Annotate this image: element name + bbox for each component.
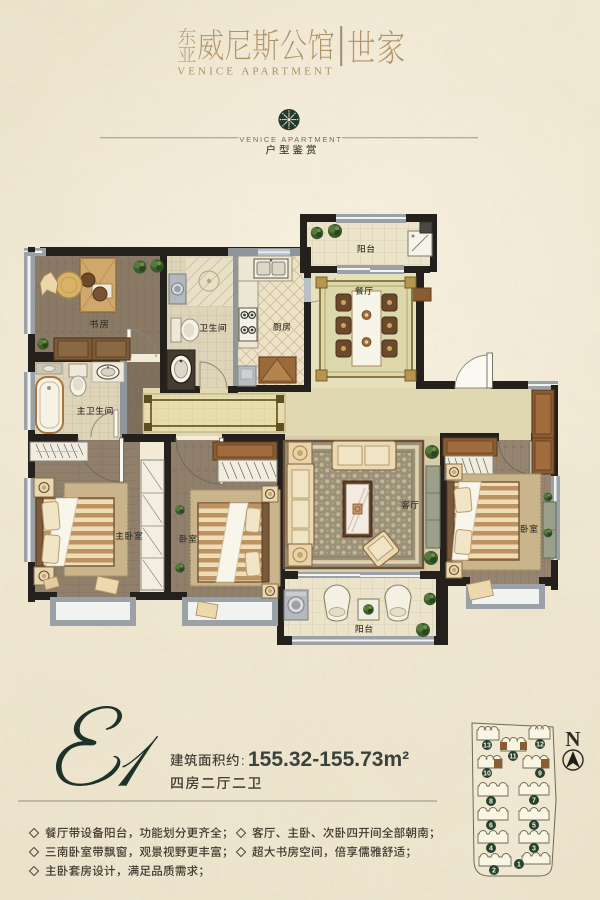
svg-text:VENICE APARTMENT: VENICE APARTMENT bbox=[239, 135, 342, 144]
svg-text:N: N bbox=[565, 727, 580, 751]
svg-text:2: 2 bbox=[492, 868, 496, 875]
svg-text:8: 8 bbox=[489, 799, 493, 806]
svg-text:3: 3 bbox=[532, 846, 536, 853]
svg-text:13: 13 bbox=[483, 743, 491, 750]
svg-text:11: 11 bbox=[509, 754, 517, 761]
svg-text:10: 10 bbox=[483, 771, 491, 778]
svg-text:VENICE APARTMENT: VENICE APARTMENT bbox=[177, 66, 335, 78]
svg-text:7: 7 bbox=[532, 798, 536, 805]
svg-text::: : bbox=[241, 753, 245, 768]
svg-text:5: 5 bbox=[532, 823, 536, 830]
svg-text:4: 4 bbox=[489, 846, 493, 853]
svg-text:155.32-155.73m²: 155.32-155.73m² bbox=[248, 748, 409, 771]
svg-text:12: 12 bbox=[536, 742, 544, 749]
svg-text:6: 6 bbox=[489, 823, 493, 830]
svg-text:1: 1 bbox=[517, 862, 521, 869]
svg-text:9: 9 bbox=[538, 771, 542, 778]
